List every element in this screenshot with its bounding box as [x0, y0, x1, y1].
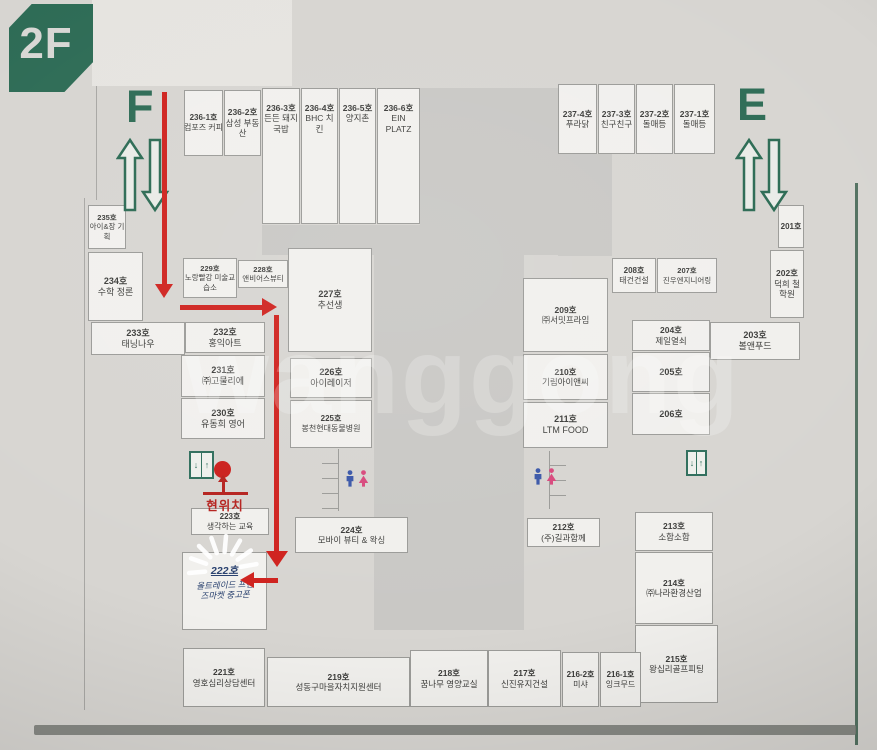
room-212: 212호 (주)길과함께	[527, 518, 600, 547]
room-221: 221호 영호심리상담센터	[183, 648, 265, 707]
room-208: 208호 태건건설	[612, 258, 656, 293]
room-number: 217호	[513, 668, 535, 678]
room-205: 205호	[632, 352, 710, 392]
escalator-e-updown-icon	[735, 137, 789, 213]
room-number: 221호	[213, 667, 235, 677]
room-236-6: 236-6호 EIN PLATZ	[377, 88, 420, 224]
room-name: BHC 치킨	[302, 113, 337, 134]
room-number: 237-4호	[563, 109, 593, 119]
room-number: 210호	[554, 367, 576, 377]
room-name: 푸라닭	[566, 119, 589, 129]
room-name: 기림아이앤씨	[542, 377, 589, 387]
room-name: 홍익아트	[208, 338, 241, 349]
room-name: 왕십리골프피팅	[649, 664, 704, 674]
room-name: 삼성 부동산	[225, 118, 260, 139]
floor-map-2f: 2F F E 236-1호 컴포즈 커피 236-2호 삼성 부동산 236-3…	[0, 0, 877, 750]
room-name: EIN PLATZ	[378, 113, 419, 134]
room-name: 태닝나우	[121, 339, 154, 350]
room-236-3: 236-3호 든든 돼지국밥	[262, 88, 300, 224]
route-line-right	[180, 305, 262, 310]
room-204: 204호 제일열쇠	[632, 320, 710, 351]
room-name: 진우엔지니어링	[663, 276, 711, 285]
room-236-4: 236-4호 BHC 치킨	[301, 88, 338, 224]
restroom-icon-left	[345, 470, 369, 487]
room-number: 228호	[253, 265, 272, 274]
room-207: 207호 진우엔지니어링	[657, 258, 717, 293]
room-202: 202호 덕희 철학원	[770, 250, 804, 318]
room-name: 영호심리상담센터	[193, 678, 256, 688]
room-name: 아이&장 기획	[89, 222, 125, 240]
current-location-label: 현위치	[196, 495, 254, 514]
room-218: 218호 꿈나무 영양교실	[410, 650, 488, 707]
room-name: ㈜나라환경산업	[646, 588, 701, 598]
room-number: 236-6호	[384, 103, 414, 113]
room-237-1: 237-1호 돌매등	[674, 84, 715, 154]
room-name: 유동희 영어	[201, 419, 245, 430]
room-number: 232호	[213, 327, 236, 338]
room-236-5: 236-5호 양지촌	[339, 88, 376, 224]
room-number: 237-3호	[602, 109, 632, 119]
room-236-1: 236-1호 컴포즈 커피	[184, 90, 223, 156]
room-number: 231호	[211, 365, 234, 376]
room-name: 모바이 뷰티 & 왁싱	[318, 535, 386, 545]
wall-escalator-left	[96, 86, 97, 200]
outer-wall-left	[84, 198, 85, 710]
room-number: 230호	[211, 408, 234, 419]
room-number: 211호	[554, 414, 577, 425]
escalator-e-label: E	[737, 82, 767, 127]
current-location-arrow-stem	[222, 481, 225, 492]
room-227: 227호 추선생	[288, 248, 372, 352]
floor-label: 2F	[19, 19, 72, 69]
room-number: 225호	[321, 414, 342, 424]
room-name: 성동구마을자치지원센터	[295, 682, 381, 692]
room-number: 216-2호	[567, 670, 595, 680]
room-name: 신진유지건설	[501, 679, 548, 689]
room-number: 227호	[318, 289, 341, 300]
male-figure-icon	[345, 470, 355, 487]
room-number: 207호	[677, 266, 696, 275]
room-name: 소합소합	[658, 532, 689, 542]
room-number: 236-5호	[343, 103, 373, 113]
room-name: 봉천현대동물병원	[302, 424, 361, 434]
room-215: 215호 왕십리골프피팅	[635, 625, 718, 703]
route-arrowhead-right	[262, 298, 277, 316]
room-219: 219호 성동구마을자치지원센터	[267, 657, 410, 707]
room-number: 236-4호	[305, 103, 335, 113]
room-name: 양지촌	[346, 113, 369, 123]
room-number: 213호	[663, 521, 685, 531]
route-arrowhead-down-2	[266, 551, 288, 567]
courtyard-top-neck	[420, 88, 558, 228]
floor-badge: 2F	[9, 4, 93, 92]
room-name: 추선생	[318, 300, 343, 311]
room-number: 219호	[327, 672, 349, 682]
room-214: 214호 ㈜나라환경산업	[635, 552, 713, 624]
room-name: 제일열쇠	[655, 336, 686, 346]
room-number: 236-3호	[266, 103, 296, 113]
room-237-2: 237-2호 돌매등	[636, 84, 673, 154]
room-number: 237-1호	[680, 109, 710, 119]
room-216-1: 216-1호 잉크무드	[600, 652, 641, 707]
room-number: 209호	[554, 305, 576, 315]
room-213: 213호 소합소합	[635, 512, 713, 551]
room-233: 233호 태닝나우	[91, 322, 185, 355]
room-number: 233호	[126, 328, 149, 339]
room-230: 230호 유동희 영어	[181, 398, 265, 439]
room-234: 234호 수학 정론	[88, 252, 143, 321]
restroom-icon-right	[533, 468, 557, 485]
room-name: 태건건설	[619, 276, 648, 286]
elevator-up-arrow-icon: ↑	[201, 453, 212, 477]
male-figure-icon	[533, 468, 543, 485]
room-number: 234호	[104, 276, 127, 287]
room-229: 229호 노랑빨강 미술교습소	[183, 258, 237, 298]
room-number: 212호	[552, 522, 574, 532]
room-number: 224호	[340, 525, 362, 535]
room-number: 237-2호	[640, 109, 670, 119]
room-225: 225호 봉천현대동물병원	[290, 400, 372, 448]
room-number: 202호	[776, 268, 798, 278]
room-name: 노랑빨강 미술교습소	[184, 273, 236, 291]
room-210: 210호 기림아이앤씨	[523, 354, 608, 400]
room-number: 216-1호	[607, 670, 635, 680]
route-line-down-2	[274, 315, 279, 553]
sign-top-margin	[92, 0, 292, 86]
room-name: 돌매등	[683, 119, 706, 129]
elevator-down-arrow-icon: ↓	[191, 453, 201, 477]
room-number: 203호	[743, 330, 766, 341]
room-211: 211호 LTM FOOD	[523, 402, 608, 448]
room-209: 209호 ㈜서밋프라임	[523, 278, 608, 352]
route-line-down-1	[162, 92, 167, 286]
room-number: 205호	[659, 367, 682, 378]
room-name: 친구친구	[601, 119, 632, 129]
room-number: 226호	[319, 367, 342, 378]
room-name: LTM FOOD	[543, 425, 589, 436]
room-number: 206호	[659, 409, 682, 420]
room-232: 232호 홍익아트	[185, 322, 265, 353]
elevator-down-arrow-icon: ↓	[688, 452, 696, 474]
room-number: 204호	[660, 325, 682, 335]
room-203: 203호 볼앤푸드	[710, 322, 800, 360]
sign-bottom-edge	[34, 725, 856, 735]
room-226: 226호 아이레이저	[290, 358, 372, 398]
room-name: ㈜서밋프라임	[542, 315, 590, 325]
room-name: 미샤	[573, 680, 588, 690]
room-number: 201호	[781, 222, 802, 232]
room-224: 224호 모바이 뷰티 & 왁싱	[295, 517, 408, 553]
room-228: 228호 앤비어스뷰티	[238, 260, 288, 288]
route-line-left	[254, 578, 278, 583]
room-name: 돌매등	[643, 119, 666, 129]
room-name: 든든 돼지국밥	[263, 113, 299, 134]
room-number: 214호	[663, 578, 685, 588]
room-number: 218호	[438, 668, 460, 678]
room-236-2: 236-2호 삼성 부동산	[224, 90, 261, 156]
room-name: 꿈나무 영양교실	[420, 679, 477, 689]
sign-right-edge	[855, 183, 858, 745]
female-figure-icon	[546, 468, 557, 485]
room-216-2: 216-2호 미샤	[562, 652, 599, 707]
courtyard-main	[374, 230, 524, 630]
room-number: 236-1호	[190, 113, 218, 123]
highlight-starburst-icon	[178, 530, 268, 605]
room-name: 수학 정론	[98, 287, 134, 298]
room-number: 236-2호	[228, 107, 258, 117]
route-arrowhead-left	[240, 572, 254, 588]
room-name: 볼앤푸드	[738, 341, 771, 352]
room-name: 잉크무드	[606, 680, 635, 690]
elevator-up-arrow-icon: ↑	[696, 452, 705, 474]
escalator-f-label: F	[126, 84, 154, 129]
room-name: 앤비어스뷰티	[242, 274, 283, 283]
room-237-4: 237-4호 푸라닭	[558, 84, 597, 154]
room-231: 231호 ㈜고물리에	[181, 355, 265, 397]
room-number: 215호	[665, 654, 687, 664]
room-name: (주)길과함께	[541, 533, 586, 543]
room-name: ㈜고물리에	[202, 376, 244, 387]
elevator-icon-left: ↓↑	[189, 451, 214, 479]
female-figure-icon	[358, 470, 369, 487]
room-name: 덕희 철학원	[771, 279, 803, 300]
room-name: 아이레이저	[310, 378, 351, 389]
room-206: 206호	[632, 393, 710, 435]
room-number: 208호	[624, 266, 645, 276]
room-217: 217호 신진유지건설	[488, 650, 561, 707]
route-arrowhead-down-1	[155, 284, 173, 298]
room-name: 컴포즈 커피	[184, 123, 223, 133]
restroom-stalls-left	[322, 449, 339, 511]
elevator-icon-right: ↓↑	[686, 450, 707, 476]
room-237-3: 237-3호 친구친구	[598, 84, 635, 154]
